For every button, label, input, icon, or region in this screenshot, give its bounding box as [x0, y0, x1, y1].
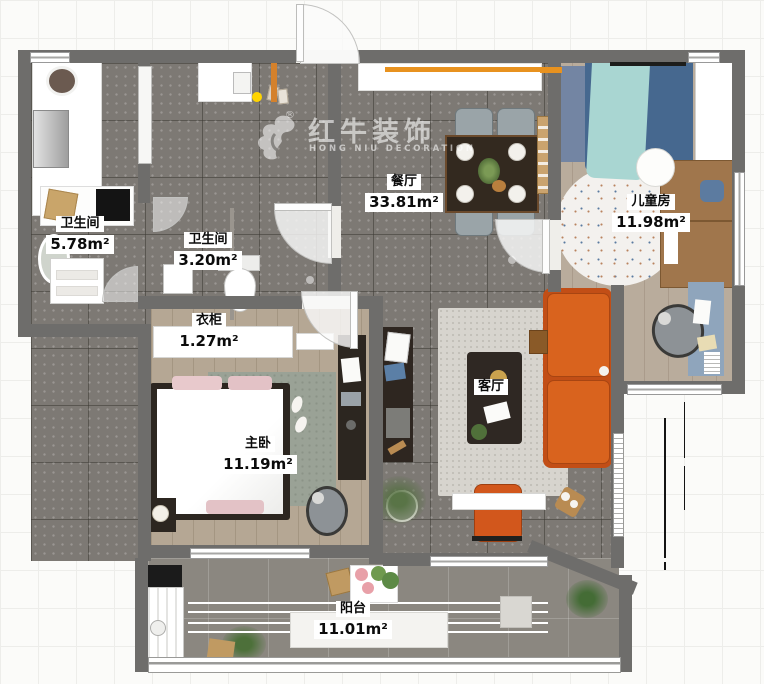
table-plant	[471, 424, 487, 440]
wall-master-left	[138, 324, 151, 561]
bed-throw-pink	[206, 500, 264, 514]
window-top-left	[30, 52, 70, 63]
console-papers	[384, 332, 410, 364]
floorplan-canvas: ® 红牛装饰 HONG NIU DECORATION 卫生间 5.78m² 卫生…	[0, 0, 764, 684]
room-label-dining: 餐厅 33.81m²	[356, 174, 452, 212]
tile-mat	[500, 596, 532, 628]
room-name: 卫生间	[184, 232, 231, 248]
room-label-balcony: 阳台 11.01m²	[305, 601, 401, 639]
bath2-washer	[233, 72, 251, 94]
console-magazine	[384, 363, 406, 382]
watermark-subtitle: HONG NIU DECORATION	[309, 144, 476, 154]
room-label-kids: 儿童房 11.98m²	[603, 194, 699, 232]
kids-chair-pad	[658, 312, 671, 325]
entry-shoes	[277, 89, 289, 105]
kids-door-leaf	[542, 219, 550, 274]
kids-ladder-shelf	[704, 352, 720, 374]
bath2-door-leaf	[274, 203, 332, 211]
room-name: 卫生间	[56, 216, 103, 232]
room-label-bathroom1: 卫生间 5.78m²	[32, 216, 128, 254]
curtain-rod	[610, 62, 686, 66]
centerpiece-bread	[492, 180, 506, 192]
lounge-chair-legs	[472, 536, 522, 541]
sofa-pillow	[599, 366, 609, 376]
pink-flowers	[355, 568, 368, 581]
nightstand-lamp	[152, 505, 169, 522]
cups	[570, 500, 578, 508]
accent-orange-bar	[385, 67, 562, 72]
sofa-cushion	[547, 380, 610, 464]
kids-pillow	[636, 148, 675, 187]
room-area: 5.78m²	[46, 235, 113, 254]
bath1-basin	[46, 66, 78, 96]
kids-wardrobe	[695, 58, 733, 164]
window-master-balcony	[190, 548, 310, 559]
balcony-bottom-rail	[148, 657, 621, 673]
wall-balcony-left	[135, 558, 148, 671]
room-area: 11.19m²	[219, 455, 297, 474]
round-green-plant	[382, 572, 399, 589]
plate	[508, 185, 526, 203]
window-kids-right	[734, 172, 745, 286]
wall-master-top-a	[138, 296, 302, 309]
sofa-tray	[529, 330, 548, 354]
balcony-bush	[566, 580, 608, 618]
hongniu-logo-icon	[253, 114, 305, 160]
kids-desk-paper	[693, 299, 711, 325]
room-area: 11.98m²	[612, 213, 690, 232]
fridge	[33, 110, 69, 168]
desk-photo	[341, 392, 361, 406]
kids-cushion	[700, 180, 724, 202]
yellow-marker	[252, 92, 262, 102]
plate	[456, 185, 474, 203]
room-area: 3.20m²	[174, 251, 241, 270]
entry-door-leaf	[296, 4, 304, 62]
white-side-table	[452, 493, 546, 510]
room-label-master: 主卧 11.19m²	[210, 436, 306, 474]
entry-orange-strip-v	[271, 58, 277, 102]
room-label-bathroom2: 卫生间 3.20m²	[160, 232, 256, 270]
pink-flowers	[362, 582, 374, 594]
wall-master-right	[369, 296, 383, 564]
room-area: 1.27m²	[175, 332, 242, 351]
bath1-drawer-cabinet	[50, 258, 104, 304]
cups	[561, 492, 570, 501]
room-area: 33.81m²	[365, 193, 443, 212]
washer-drum	[150, 620, 166, 636]
bed-pillow-pink	[172, 376, 222, 390]
kids-accent-orange-bar	[540, 67, 562, 73]
entry-door-swing	[300, 4, 360, 64]
room-name: 客厅	[474, 379, 508, 395]
window-living-balcony	[430, 556, 548, 567]
wall-left	[18, 50, 31, 337]
bath1-drawer-line	[56, 270, 98, 280]
master-door-leaf	[350, 291, 358, 349]
downlight	[306, 276, 314, 284]
kids-shelf-box	[664, 228, 678, 264]
room-name: 阳台	[336, 601, 370, 617]
radiator-living-right	[613, 433, 624, 537]
dimension-line	[664, 562, 666, 570]
room-name: 儿童房	[627, 194, 674, 210]
desk-paper	[341, 357, 361, 383]
console-box	[386, 408, 410, 438]
dimension-line	[664, 418, 666, 558]
room-name: 餐厅	[387, 174, 421, 190]
watermark: ® 红牛装饰 HONG NIU DECORATION	[253, 108, 583, 164]
room-name: 衣柜	[192, 313, 226, 329]
pocket-door	[138, 66, 152, 164]
rail-cap-left	[135, 657, 148, 672]
bath1-drawer-line	[56, 286, 98, 296]
wall-bath1-bottom	[18, 324, 151, 337]
room-name: 主卧	[241, 436, 275, 452]
sofa-cushion	[547, 293, 610, 377]
desk-cup	[346, 420, 356, 430]
master-chair-pad	[312, 492, 324, 504]
window-top-right	[688, 52, 720, 63]
dimension-line	[684, 402, 685, 458]
dimension-line	[684, 466, 685, 510]
room-label-wardrobe: 衣柜 1.27m²	[161, 313, 257, 351]
room-area: 11.01m²	[314, 620, 392, 639]
room-label-living: 客厅	[443, 379, 539, 395]
bed-pillow-pink	[228, 376, 272, 390]
window-kids-bottom	[627, 384, 722, 395]
registered-mark: ®	[285, 110, 295, 121]
